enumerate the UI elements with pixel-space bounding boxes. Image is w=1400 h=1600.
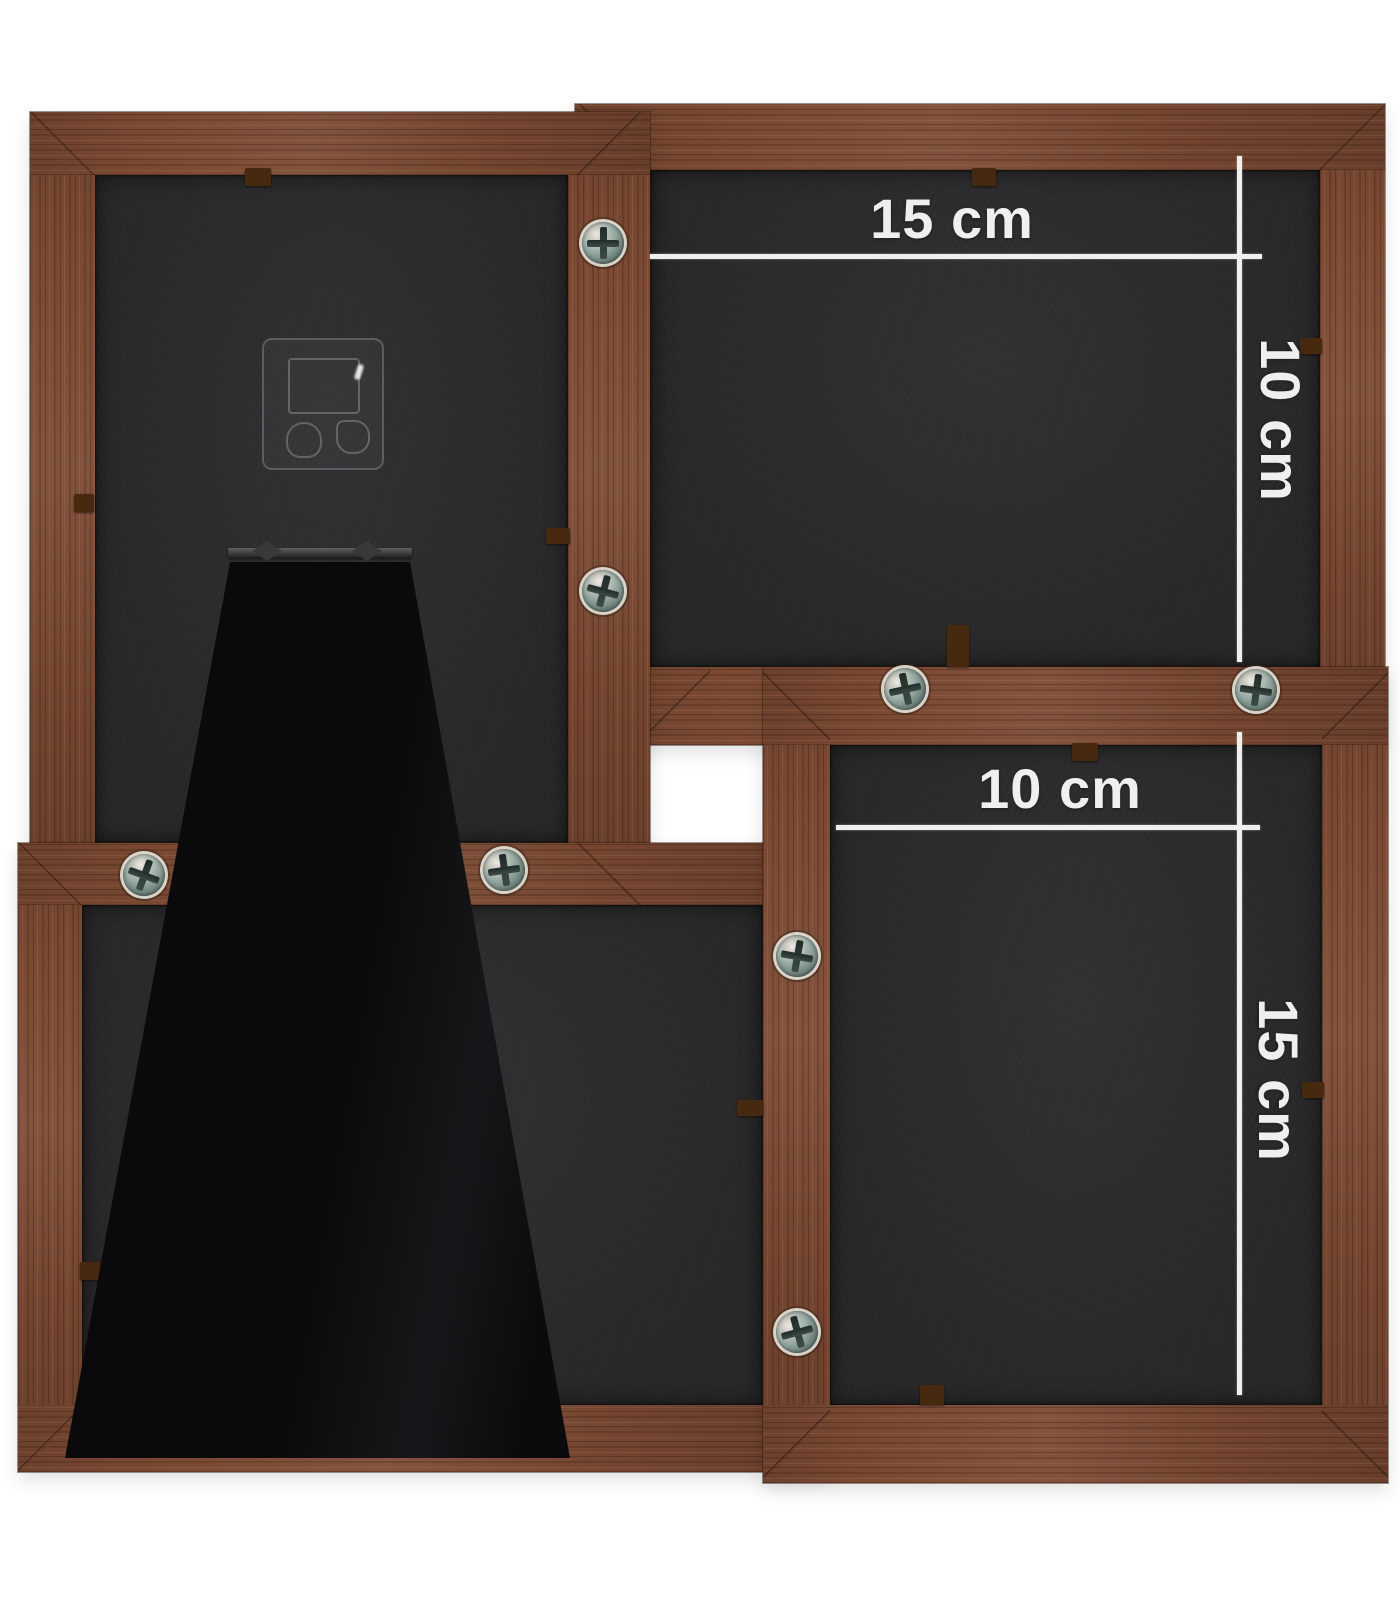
retainer-clip: [972, 168, 996, 186]
frame-top-right-top-rail: [575, 104, 1385, 170]
retainer-clip: [74, 494, 94, 512]
dimension-label-top-height: 10 cm: [1249, 310, 1311, 530]
frame-bottom-left-left-rail: [18, 843, 82, 1472]
hanger-window: [288, 358, 360, 414]
dimension-line-top-height: [1237, 156, 1242, 662]
frame-bottom-right-bottom-rail: [763, 1405, 1388, 1483]
frame-top-left-top-rail: [30, 112, 650, 175]
frame-bottom-right-right-rail: [1322, 667, 1388, 1483]
retainer-clip: [546, 528, 570, 544]
retainer-clip: [947, 625, 969, 667]
retainer-clip: [737, 1100, 763, 1116]
screw-icon: [582, 222, 624, 264]
dimension-label-bottom-height: 15 cm: [1247, 970, 1309, 1190]
dimension-label-top-width: 15 cm: [842, 188, 1062, 250]
retainer-clip: [80, 1262, 100, 1280]
product-photo-frame-back: 15 cm 10 cm 10 cm 15 cm: [0, 0, 1400, 1600]
hanger-hole-right: [336, 420, 370, 454]
frame-top-right-right-rail: [1320, 104, 1385, 745]
hanger-hole-left: [286, 422, 322, 458]
dimension-line-bottom-width: [836, 825, 1260, 830]
retainer-clip: [920, 1385, 944, 1405]
retainer-clip: [245, 168, 271, 186]
dimension-line-bottom-height: [1237, 732, 1242, 1395]
dimension-label-bottom-width: 10 cm: [950, 758, 1170, 820]
hanger-bracket: [262, 338, 384, 470]
frame-bottom-right-top-rail: [763, 667, 1388, 745]
dimension-line-top-width: [650, 254, 1262, 259]
frame-bottom-right-left-rail: [763, 667, 830, 1483]
